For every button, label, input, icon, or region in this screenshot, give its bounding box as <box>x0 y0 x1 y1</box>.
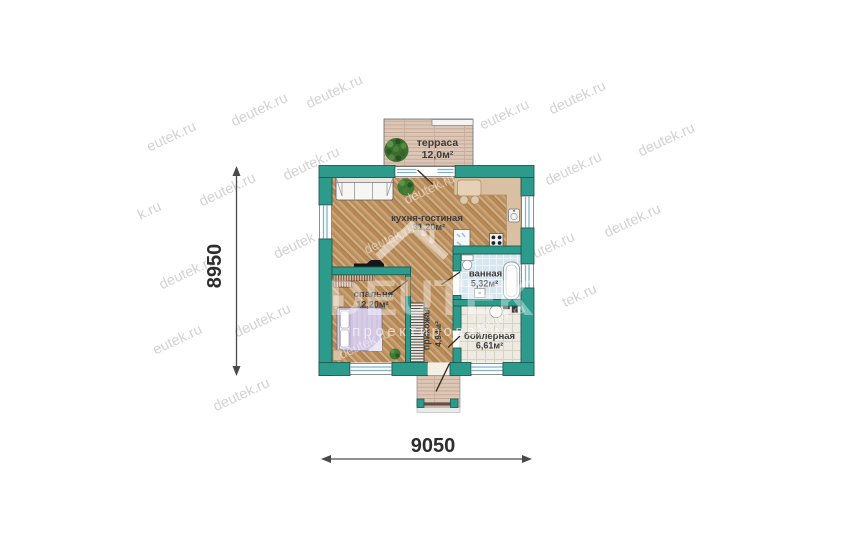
svg-text:8950: 8950 <box>204 244 226 289</box>
svg-text:6,61м²: 6,61м² <box>476 341 503 351</box>
svg-text:12,0м²: 12,0м² <box>422 149 454 161</box>
svg-text:терраса: терраса <box>417 137 459 149</box>
svg-text:9050: 9050 <box>411 435 456 457</box>
